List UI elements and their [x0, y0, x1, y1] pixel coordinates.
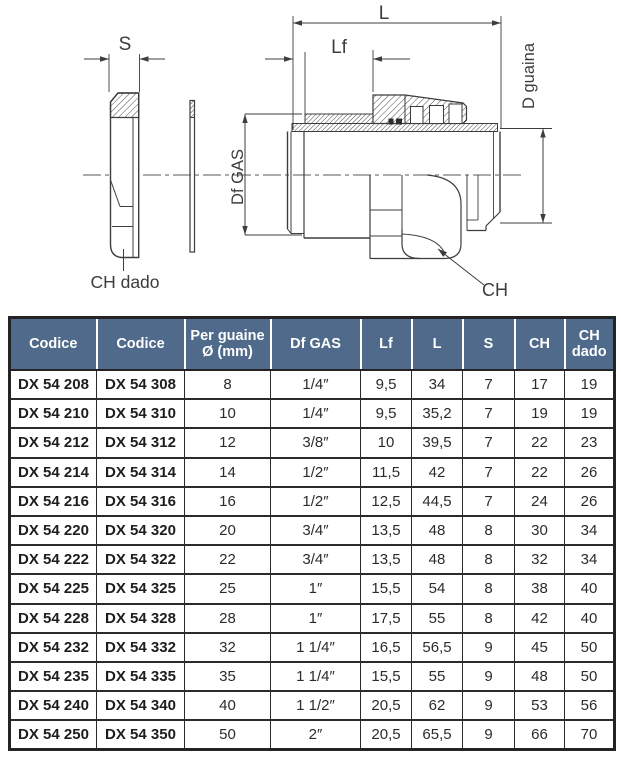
value-cell: 17	[515, 370, 565, 399]
value-cell: 14	[185, 458, 271, 487]
value-cell: 19	[565, 399, 615, 428]
value-cell: 56	[565, 691, 615, 720]
value-cell: 54	[412, 574, 463, 603]
value-cell: 39,5	[412, 428, 463, 457]
value-cell: 40	[185, 691, 271, 720]
value-cell: 13,5	[361, 545, 412, 574]
table-row: DX 54 214DX 54 314141/2″11,54272226	[10, 458, 615, 487]
value-cell: 17,5	[361, 604, 412, 633]
value-cell: 20	[185, 516, 271, 545]
code-cell: DX 54 235	[10, 662, 97, 691]
column-header: Codice	[97, 318, 185, 371]
fitting-section-drawing	[288, 95, 501, 259]
value-cell: 20,5	[361, 691, 412, 720]
code-cell: DX 54 216	[10, 487, 97, 516]
code-cell: DX 54 210	[10, 399, 97, 428]
code-cell: DX 54 312	[97, 428, 185, 457]
code-cell: DX 54 228	[10, 604, 97, 633]
value-cell: 1/4″	[271, 399, 361, 428]
code-cell: DX 54 340	[97, 691, 185, 720]
value-cell: 25	[185, 574, 271, 603]
value-cell: 15,5	[361, 574, 412, 603]
table-row: DX 54 235DX 54 335351 1/4″15,55594850	[10, 662, 615, 691]
value-cell: 3/4″	[271, 516, 361, 545]
value-cell: 9	[463, 691, 515, 720]
value-cell: 53	[515, 691, 565, 720]
column-header: L	[412, 318, 463, 371]
washer-section-drawing	[190, 101, 195, 253]
ch-leader	[438, 249, 484, 285]
code-cell: DX 54 332	[97, 633, 185, 662]
value-cell: 1 1/4″	[271, 633, 361, 662]
code-cell: DX 54 350	[97, 720, 185, 750]
dim-label-ch-dado: CH dado	[83, 274, 167, 292]
code-cell: DX 54 314	[97, 458, 185, 487]
value-cell: 20,5	[361, 720, 412, 750]
code-cell: DX 54 214	[10, 458, 97, 487]
value-cell: 48	[412, 516, 463, 545]
table-row: DX 54 228DX 54 328281″17,55584240	[10, 604, 615, 633]
table-row: DX 54 232DX 54 332321 1/4″16,556,594550	[10, 633, 615, 662]
dim-label-s: S	[110, 35, 140, 54]
code-cell: DX 54 212	[10, 428, 97, 457]
value-cell: 40	[565, 604, 615, 633]
spec-table: CodiceCodicePer guaine Ø (mm)Df GASLfLSC…	[8, 316, 616, 751]
value-cell: 7	[463, 458, 515, 487]
dim-label-ch: CH	[482, 281, 526, 299]
value-cell: 8	[463, 604, 515, 633]
column-header: Per guaine Ø (mm)	[185, 318, 271, 371]
value-cell: 10	[361, 428, 412, 457]
value-cell: 35	[185, 662, 271, 691]
value-cell: 30	[515, 516, 565, 545]
table-row: DX 54 220DX 54 320203/4″13,54883034	[10, 516, 615, 545]
value-cell: 1 1/4″	[271, 662, 361, 691]
value-cell: 48	[412, 545, 463, 574]
table-body: DX 54 208DX 54 30881/4″9,53471719DX 54 2…	[10, 370, 615, 750]
value-cell: 50	[565, 662, 615, 691]
s-dimension	[84, 54, 165, 92]
value-cell: 19	[515, 399, 565, 428]
value-cell: 2″	[271, 720, 361, 750]
value-cell: 7	[463, 487, 515, 516]
value-cell: 56,5	[412, 633, 463, 662]
value-cell: 9,5	[361, 399, 412, 428]
value-cell: 55	[412, 662, 463, 691]
value-cell: 70	[565, 720, 615, 750]
code-cell: DX 54 325	[97, 574, 185, 603]
table-row: DX 54 222DX 54 322223/4″13,54883234	[10, 545, 615, 574]
value-cell: 23	[565, 428, 615, 457]
value-cell: 32	[185, 633, 271, 662]
value-cell: 8	[185, 370, 271, 399]
code-cell: DX 54 335	[97, 662, 185, 691]
value-cell: 3/8″	[271, 428, 361, 457]
value-cell: 50	[185, 720, 271, 750]
table-row: DX 54 250DX 54 350502″20,565,596670	[10, 720, 615, 750]
value-cell: 45	[515, 633, 565, 662]
value-cell: 8	[463, 574, 515, 603]
value-cell: 13,5	[361, 516, 412, 545]
code-cell: DX 54 250	[10, 720, 97, 750]
value-cell: 35,2	[412, 399, 463, 428]
code-cell: DX 54 316	[97, 487, 185, 516]
value-cell: 7	[463, 399, 515, 428]
code-cell: DX 54 322	[97, 545, 185, 574]
dim-label-df-gas: Df GAS	[230, 122, 250, 232]
value-cell: 7	[463, 370, 515, 399]
value-cell: 1″	[271, 574, 361, 603]
value-cell: 34	[412, 370, 463, 399]
value-cell: 9	[463, 633, 515, 662]
value-cell: 28	[185, 604, 271, 633]
code-cell: DX 54 222	[10, 545, 97, 574]
table-row: DX 54 210DX 54 310101/4″9,535,271919	[10, 399, 615, 428]
value-cell: 65,5	[412, 720, 463, 750]
value-cell: 34	[565, 545, 615, 574]
datasheet-page: { "diagram": { "labels": { "s": "S", "l"…	[0, 0, 621, 765]
table-row: DX 54 216DX 54 316161/2″12,544,572426	[10, 487, 615, 516]
table-row: DX 54 212DX 54 312123/8″1039,572223	[10, 428, 615, 457]
value-cell: 10	[185, 399, 271, 428]
value-cell: 1/2″	[271, 487, 361, 516]
table-header: CodiceCodicePer guaine Ø (mm)Df GASLfLSC…	[10, 318, 615, 371]
dim-label-l: L	[369, 4, 399, 23]
value-cell: 26	[565, 458, 615, 487]
table-row: DX 54 240DX 54 340401 1/2″20,56295356	[10, 691, 615, 720]
code-cell: DX 54 232	[10, 633, 97, 662]
code-cell: DX 54 220	[10, 516, 97, 545]
value-cell: 1/4″	[271, 370, 361, 399]
value-cell: 50	[565, 633, 615, 662]
table-row: DX 54 208DX 54 30881/4″9,53471719	[10, 370, 615, 399]
dim-label-d-guaina: D guaina	[521, 21, 541, 131]
code-cell: DX 54 320	[97, 516, 185, 545]
value-cell: 12,5	[361, 487, 412, 516]
code-cell: DX 54 310	[97, 399, 185, 428]
column-header: CH	[515, 318, 565, 371]
value-cell: 15,5	[361, 662, 412, 691]
value-cell: 42	[412, 458, 463, 487]
value-cell: 22	[515, 458, 565, 487]
value-cell: 9	[463, 662, 515, 691]
value-cell: 22	[515, 428, 565, 457]
value-cell: 48	[515, 662, 565, 691]
value-cell: 24	[515, 487, 565, 516]
code-cell: DX 54 308	[97, 370, 185, 399]
value-cell: 44,5	[412, 487, 463, 516]
value-cell: 26	[565, 487, 615, 516]
value-cell: 42	[515, 604, 565, 633]
code-cell: DX 54 240	[10, 691, 97, 720]
value-cell: 7	[463, 428, 515, 457]
code-cell: DX 54 225	[10, 574, 97, 603]
value-cell: 9	[463, 720, 515, 750]
value-cell: 19	[565, 370, 615, 399]
nut-section-drawing	[111, 93, 139, 258]
d-guaina-dimension	[500, 129, 552, 224]
technical-drawing: S L Lf Df GAS D guaina CH CH dado	[0, 0, 621, 313]
value-cell: 3/4″	[271, 545, 361, 574]
dim-label-lf: Lf	[322, 38, 356, 57]
table-row: DX 54 225DX 54 325251″15,55483840	[10, 574, 615, 603]
column-header: Codice	[10, 318, 97, 371]
value-cell: 1″	[271, 604, 361, 633]
value-cell: 62	[412, 691, 463, 720]
value-cell: 8	[463, 516, 515, 545]
value-cell: 32	[515, 545, 565, 574]
code-cell: DX 54 328	[97, 604, 185, 633]
value-cell: 38	[515, 574, 565, 603]
value-cell: 16	[185, 487, 271, 516]
value-cell: 1 1/2″	[271, 691, 361, 720]
value-cell: 34	[565, 516, 615, 545]
value-cell: 16,5	[361, 633, 412, 662]
column-header: S	[463, 318, 515, 371]
value-cell: 11,5	[361, 458, 412, 487]
value-cell: 1/2″	[271, 458, 361, 487]
column-header: Lf	[361, 318, 412, 371]
header-row: CodiceCodicePer guaine Ø (mm)Df GASLfLSC…	[10, 318, 615, 371]
value-cell: 12	[185, 428, 271, 457]
value-cell: 66	[515, 720, 565, 750]
code-cell: DX 54 208	[10, 370, 97, 399]
value-cell: 8	[463, 545, 515, 574]
value-cell: 9,5	[361, 370, 412, 399]
column-header: CH dado	[565, 318, 615, 371]
value-cell: 22	[185, 545, 271, 574]
value-cell: 55	[412, 604, 463, 633]
column-header: Df GAS	[271, 318, 361, 371]
value-cell: 40	[565, 574, 615, 603]
